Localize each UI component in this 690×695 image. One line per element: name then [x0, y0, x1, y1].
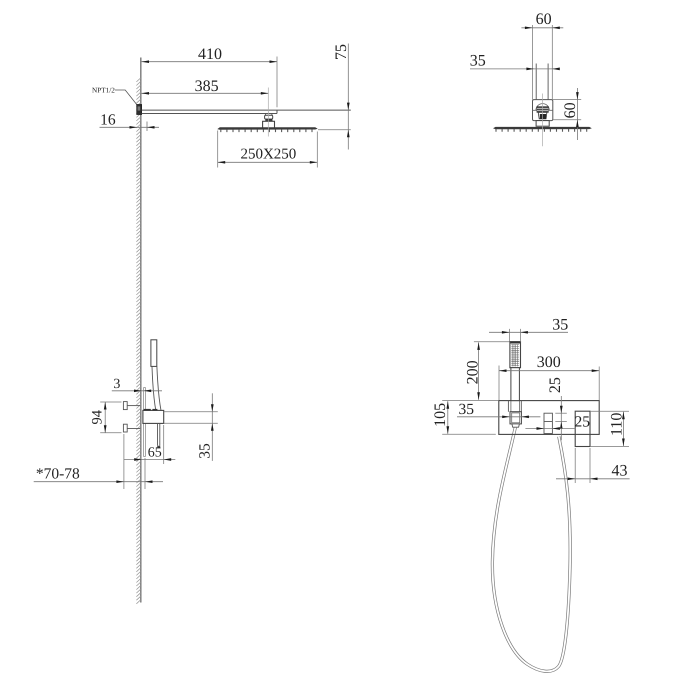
svg-text:410: 410 [198, 46, 222, 63]
svg-text:110: 110 [609, 413, 626, 436]
svg-text:200: 200 [465, 360, 482, 384]
svg-text:16: 16 [100, 112, 116, 129]
svg-text:35: 35 [459, 401, 475, 418]
svg-text:25: 25 [575, 413, 591, 430]
svg-text:35: 35 [470, 52, 486, 69]
svg-text:75: 75 [333, 44, 350, 60]
svg-text:3: 3 [113, 377, 120, 392]
svg-text:43: 43 [612, 462, 628, 479]
svg-text:105: 105 [432, 403, 449, 427]
svg-text:60: 60 [562, 102, 579, 118]
svg-text:300: 300 [537, 354, 561, 371]
svg-text:35: 35 [552, 316, 568, 333]
svg-text:250X250: 250X250 [240, 146, 296, 162]
svg-text:*70-78: *70-78 [36, 466, 80, 483]
svg-text:35: 35 [197, 443, 214, 459]
svg-text:385: 385 [195, 78, 219, 95]
svg-text:60: 60 [536, 11, 552, 28]
svg-text:NPT1/2: NPT1/2 [92, 86, 115, 94]
svg-text:25: 25 [547, 377, 564, 393]
svg-text:65: 65 [148, 446, 162, 461]
svg-text:94: 94 [90, 409, 106, 424]
